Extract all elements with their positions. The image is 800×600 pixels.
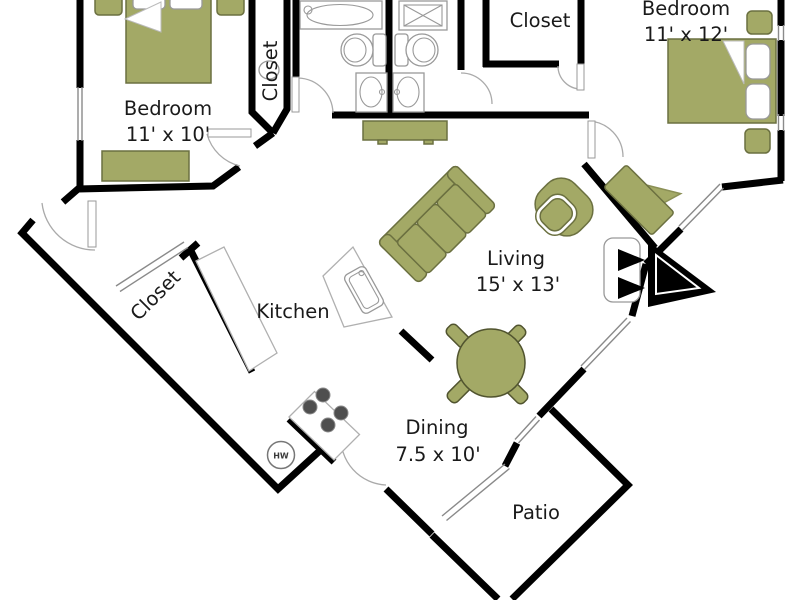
patio-label: Patio [512,501,560,524]
dining-dims: 7.5 x 10' [395,443,480,466]
shower-icon [399,1,447,30]
vanity-sink-icon [356,73,387,112]
pillow-icon [746,44,770,79]
living-dims: 15' x 13' [476,273,560,296]
bedroom1-door-leaf [208,129,251,137]
dining-furniture [444,322,530,406]
bedroom2-label: Bedroom [642,0,730,20]
closet-top-door-leaf [577,64,584,90]
hall-bench-icon [363,121,447,144]
water-heater-icon: HW [268,442,295,469]
bedroom2-door-leaf [588,121,595,158]
bedroom1-label: Bedroom [124,97,212,120]
pillow-icon [170,0,202,9]
closet-top-label: Closet [510,9,571,32]
bedroom1-dims: 11' x 10' [126,123,210,146]
bathtub-icon [300,1,382,29]
bathroom1-door-leaf [292,77,299,112]
dresser-icon [102,151,189,181]
nightstand-icon [95,0,122,15]
entry-door-leaf [88,201,96,247]
toilet-icon [341,34,386,66]
vanity-sink-icon [393,73,424,112]
dining-table-icon [457,329,525,397]
window-bedroom1 [74,88,86,140]
living-label: Living [487,247,545,270]
nightstand-icon [747,11,772,34]
pillow-icon [746,84,770,119]
kitchen-label: Kitchen [256,300,329,323]
water-heater-label: HW [273,452,289,461]
bedroom2-dims: 11' x 12' [644,23,728,46]
dining-label: Dining [406,416,469,439]
nightstand-icon [217,0,244,15]
nightstand-icon [745,129,770,153]
floor-plan: HW [0,0,800,600]
toilet-icon [395,34,438,66]
closet-hall-label: Closet [259,40,282,101]
